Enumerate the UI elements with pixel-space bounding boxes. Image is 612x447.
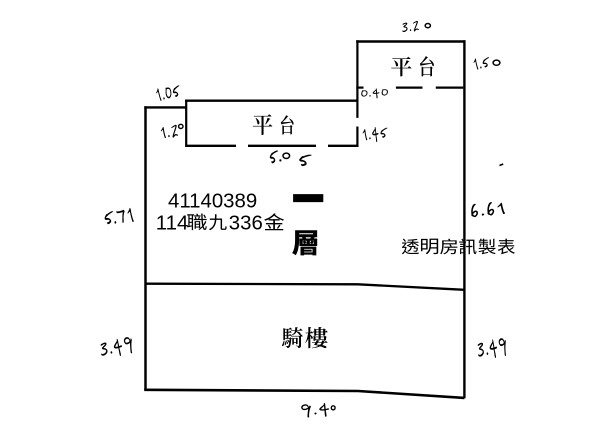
svg-text:41140389: 41140389 [168, 191, 257, 213]
svg-text:336: 336 [229, 212, 263, 234]
svg-text:114: 114 [156, 212, 189, 234]
